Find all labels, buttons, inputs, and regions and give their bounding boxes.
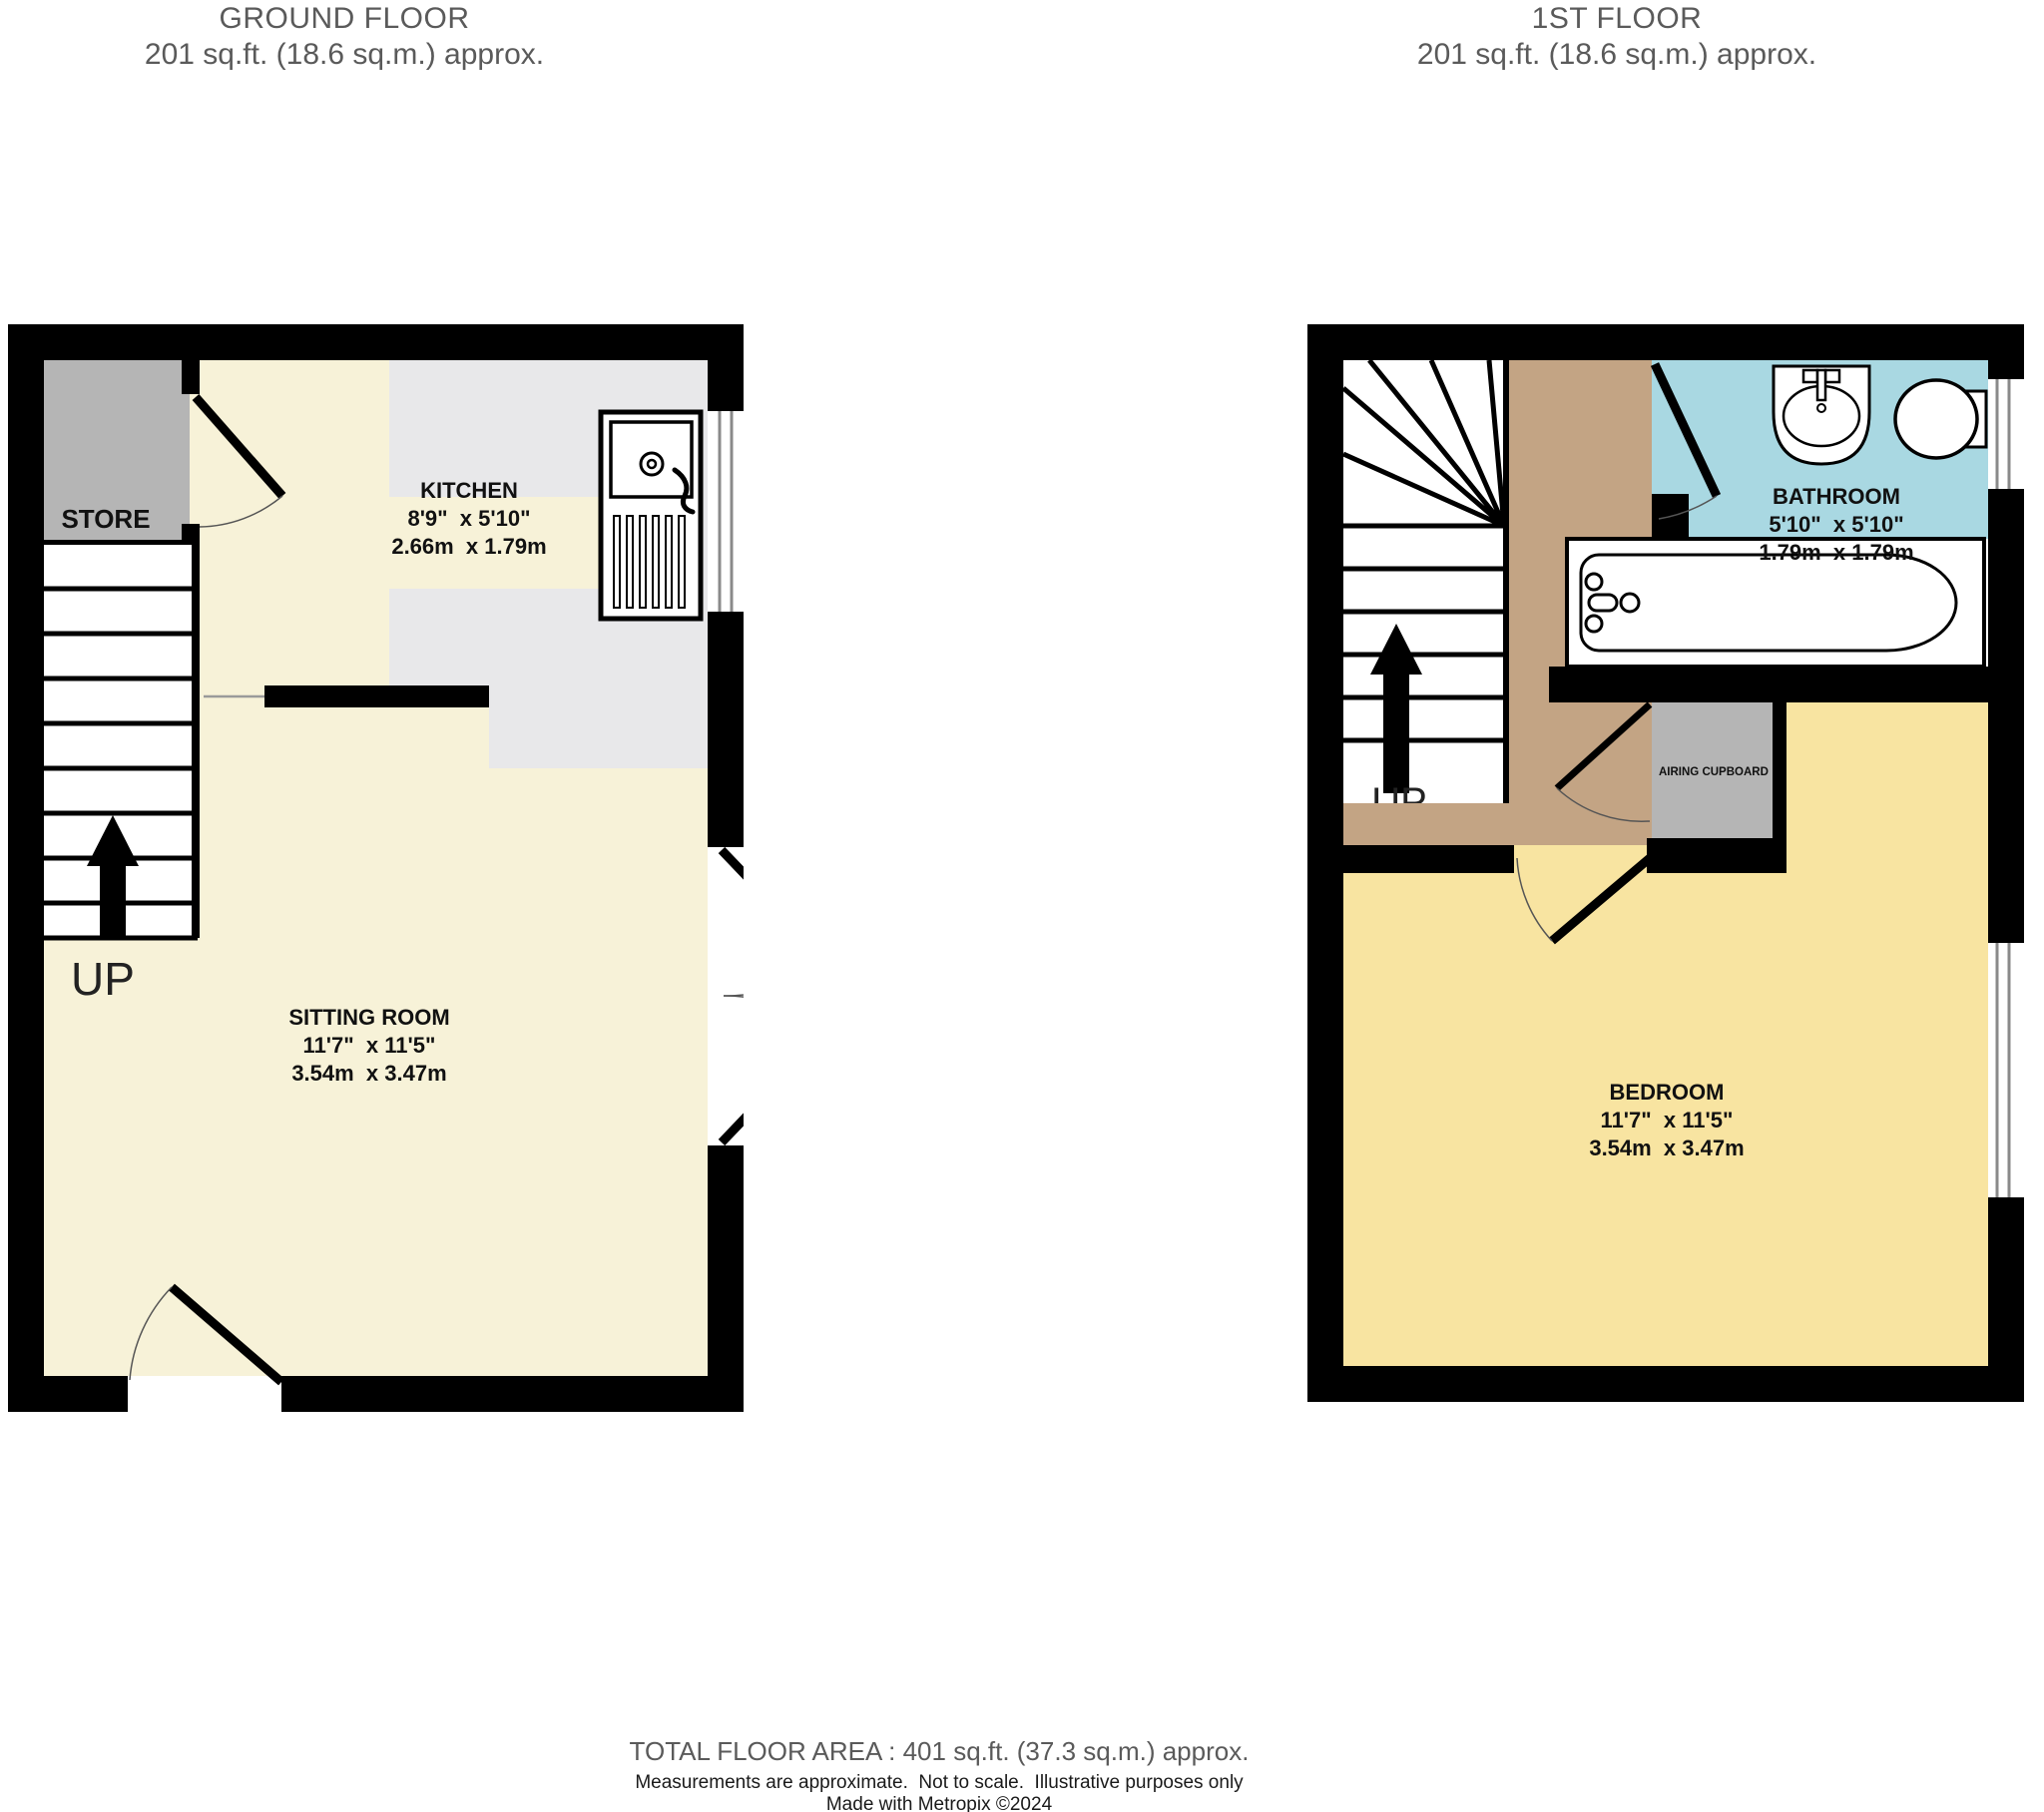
sink-icon xyxy=(1774,366,1869,464)
bedroom-window xyxy=(1988,943,2024,1197)
airing-cupboard-label: AIRING CUPBOARD xyxy=(1659,766,1773,778)
bathroom-dims-imperial: 5'10" x 5'10" xyxy=(1759,511,1913,539)
kitchen-dims-imperial: 8'9" x 5'10" xyxy=(391,505,546,533)
toilet-icon xyxy=(1895,380,1986,458)
first-floor-title: 1ST FLOOR xyxy=(1532,2,1703,36)
ground-up-label: UP xyxy=(71,953,135,1005)
bathroom-dims-metric: 1.79m x 1.79m xyxy=(1759,539,1913,567)
total-floor-area: TOTAL FLOOR AREA : 401 sq.ft. (37.3 sq.m… xyxy=(630,1736,1250,1767)
bathroom-window xyxy=(1988,379,2024,489)
bedroom-label: BEDROOM xyxy=(1589,1079,1744,1107)
bathroom-label-block: BATHROOM 5'10" x 5'10" 1.79m x 1.79m xyxy=(1759,483,1913,567)
kitchen-label-block: KITCHEN 8'9" x 5'10" 2.66m x 1.79m xyxy=(391,477,546,561)
ground-staircase xyxy=(44,544,200,938)
bedroom-floor-upper xyxy=(1787,702,1988,845)
disclaimer-text: Measurements are approximate. Not to sca… xyxy=(635,1772,1243,1794)
ground-floor-area: 201 sq.ft. (18.6 sq.m.) approx. xyxy=(145,38,544,72)
bedroom-label-block: BEDROOM 11'7" x 11'5" 3.54m x 3.47m xyxy=(1589,1079,1744,1162)
kitchen-window xyxy=(708,411,744,612)
sitting-room-dims-metric: 3.54m x 3.47m xyxy=(288,1060,449,1088)
bedroom-dims-imperial: 11'7" x 11'5" xyxy=(1589,1107,1744,1134)
kitchen-label: KITCHEN xyxy=(391,477,546,505)
sitting-room-label-block: SITTING ROOM 11'7" x 11'5" 3.54m x 3.47m xyxy=(288,1004,449,1088)
sitting-room-dims-imperial: 11'7" x 11'5" xyxy=(288,1032,449,1060)
first-floor-area: 201 sq.ft. (18.6 sq.m.) approx. xyxy=(1417,38,1816,72)
kitchen-dims-metric: 2.66m x 1.79m xyxy=(391,533,546,561)
sitting-room-label: SITTING ROOM xyxy=(288,1004,449,1032)
first-staircase xyxy=(1343,360,1509,803)
first-floor-drawing: UP xyxy=(1307,324,2024,1402)
ground-floor-plan: UP xyxy=(8,324,744,1412)
store-label: STORE xyxy=(61,504,150,535)
french-doors xyxy=(708,847,744,1145)
ground-floor-drawing: UP xyxy=(8,324,744,1412)
ground-floor-title: GROUND FLOOR xyxy=(219,2,469,36)
bathroom-label: BATHROOM xyxy=(1759,483,1913,511)
bedroom-dims-metric: 3.54m x 3.47m xyxy=(1589,1134,1744,1162)
kitchen-sink-icon xyxy=(601,412,701,619)
floorplan-page: GROUND FLOOR 201 sq.ft. (18.6 sq.m.) app… xyxy=(0,0,2044,1812)
first-floor-plan: UP xyxy=(1307,324,2024,1402)
credit-text: Made with Metropix ©2024 xyxy=(826,1794,1052,1812)
